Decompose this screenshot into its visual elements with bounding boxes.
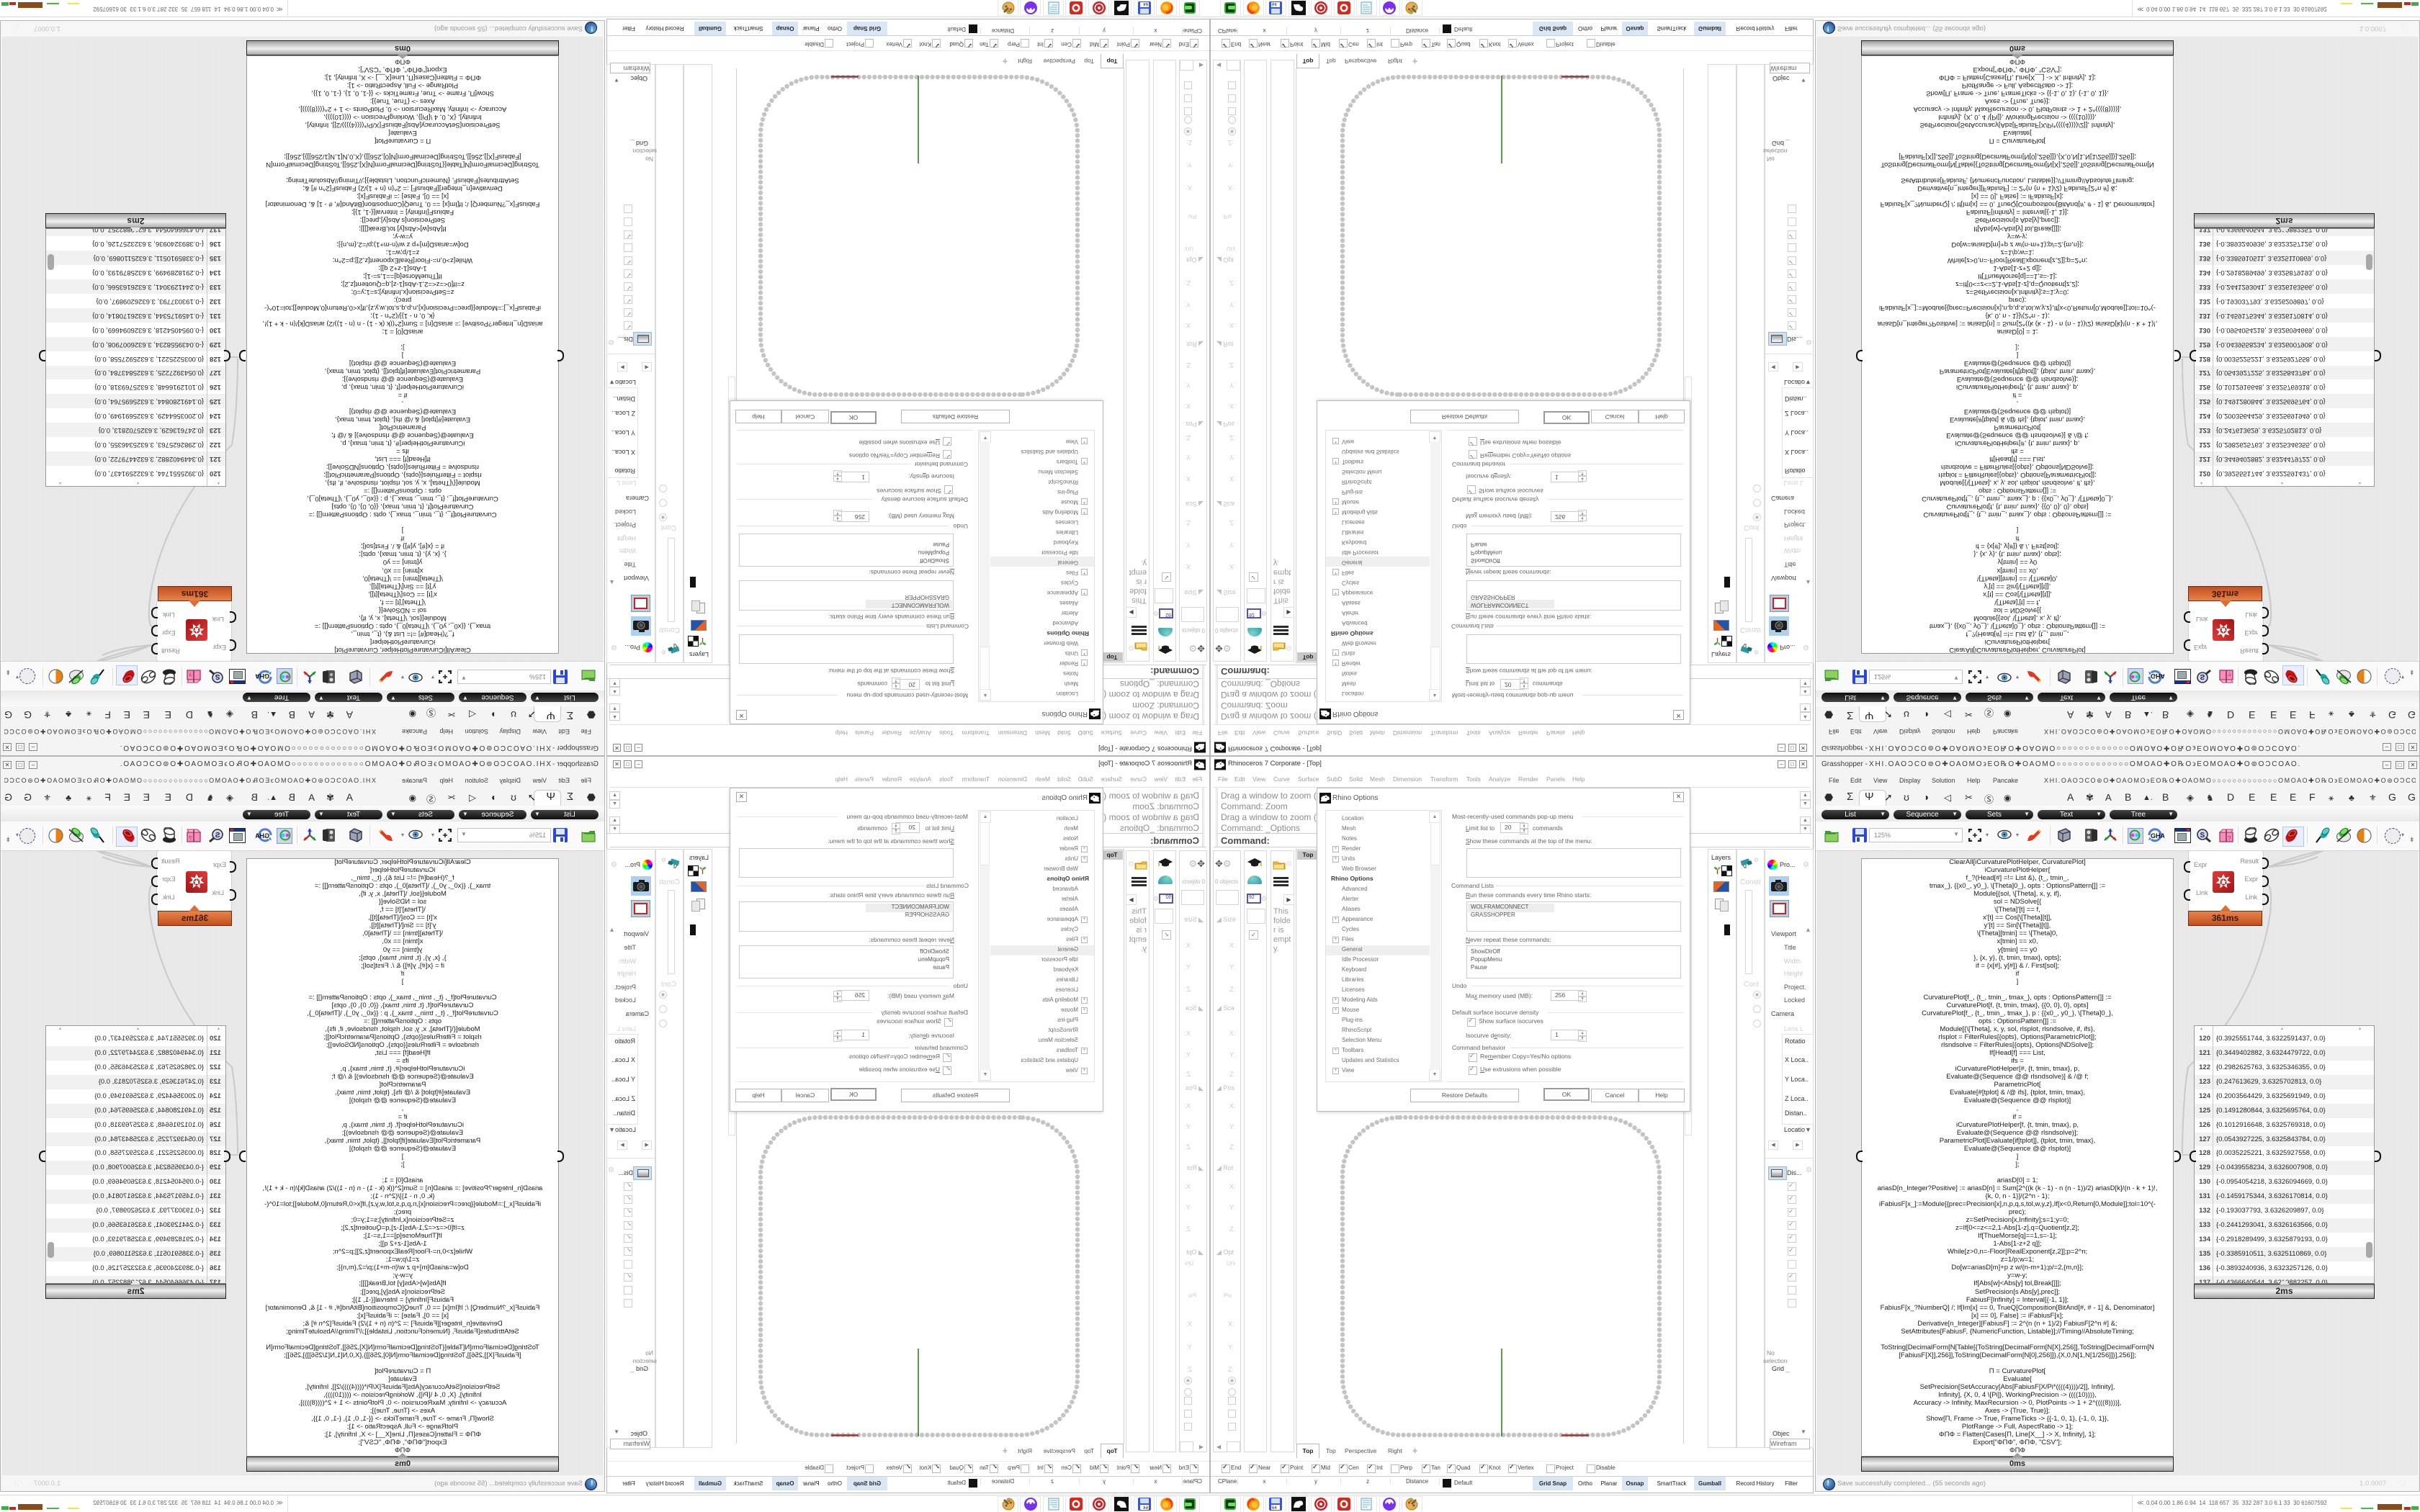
svg-text:64: 64 (1143, 1, 1148, 6)
svg-text:64: 64 (1143, 1506, 1148, 1511)
svg-text:S: S (215, 672, 220, 680)
svg-text:64: 64 (1272, 1506, 1277, 1511)
svg-text:GHA: GHA (256, 672, 269, 680)
svg-text:S: S (2200, 832, 2205, 840)
svg-text:?: ? (2228, 835, 2231, 842)
svg-text:?: ? (2228, 670, 2231, 677)
svg-text:GHA: GHA (2151, 672, 2164, 680)
svg-text:64: 64 (1272, 1, 1277, 6)
svg-text:S: S (215, 832, 220, 840)
svg-text:S: S (2200, 672, 2205, 680)
svg-text:GHA: GHA (2151, 832, 2164, 840)
svg-text:?: ? (189, 835, 192, 842)
svg-text:GHA: GHA (256, 832, 269, 840)
svg-text:?: ? (189, 670, 192, 677)
